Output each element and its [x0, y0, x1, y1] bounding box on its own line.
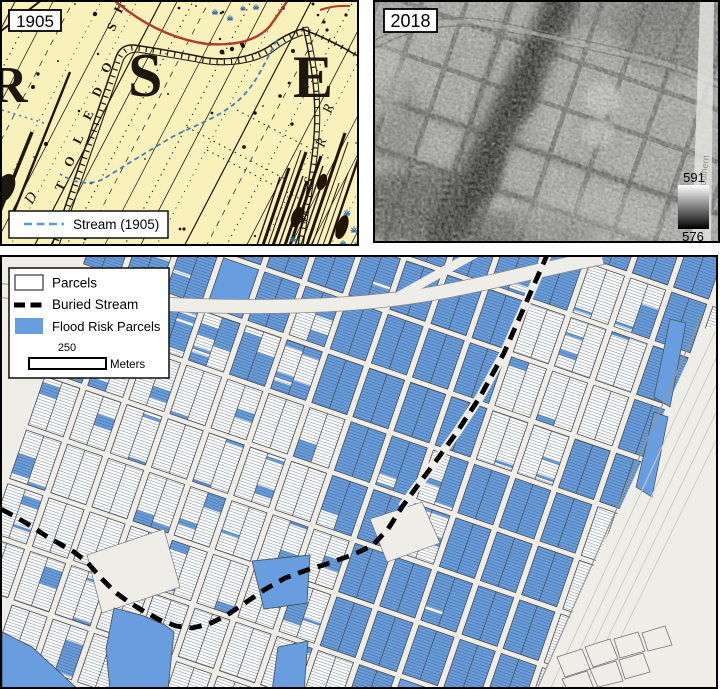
svg-text:576: 576 — [682, 229, 704, 241]
svg-text:591: 591 — [683, 170, 705, 185]
svg-text:2018: 2018 — [390, 11, 430, 31]
svg-text:Flood Risk Parcels: Flood Risk Parcels — [52, 319, 161, 334]
svg-text:Stream (1905): Stream (1905) — [73, 217, 159, 232]
svg-text:E: E — [293, 44, 333, 110]
svg-text:Buried Stream: Buried Stream — [52, 297, 138, 312]
svg-text:S: S — [128, 42, 162, 110]
svg-text:1905: 1905 — [16, 12, 54, 31]
svg-text:250: 250 — [58, 342, 76, 354]
svg-text:Parcels: Parcels — [52, 276, 97, 291]
svg-text:R: R — [2, 57, 29, 114]
svg-text:Meters: Meters — [110, 359, 145, 371]
